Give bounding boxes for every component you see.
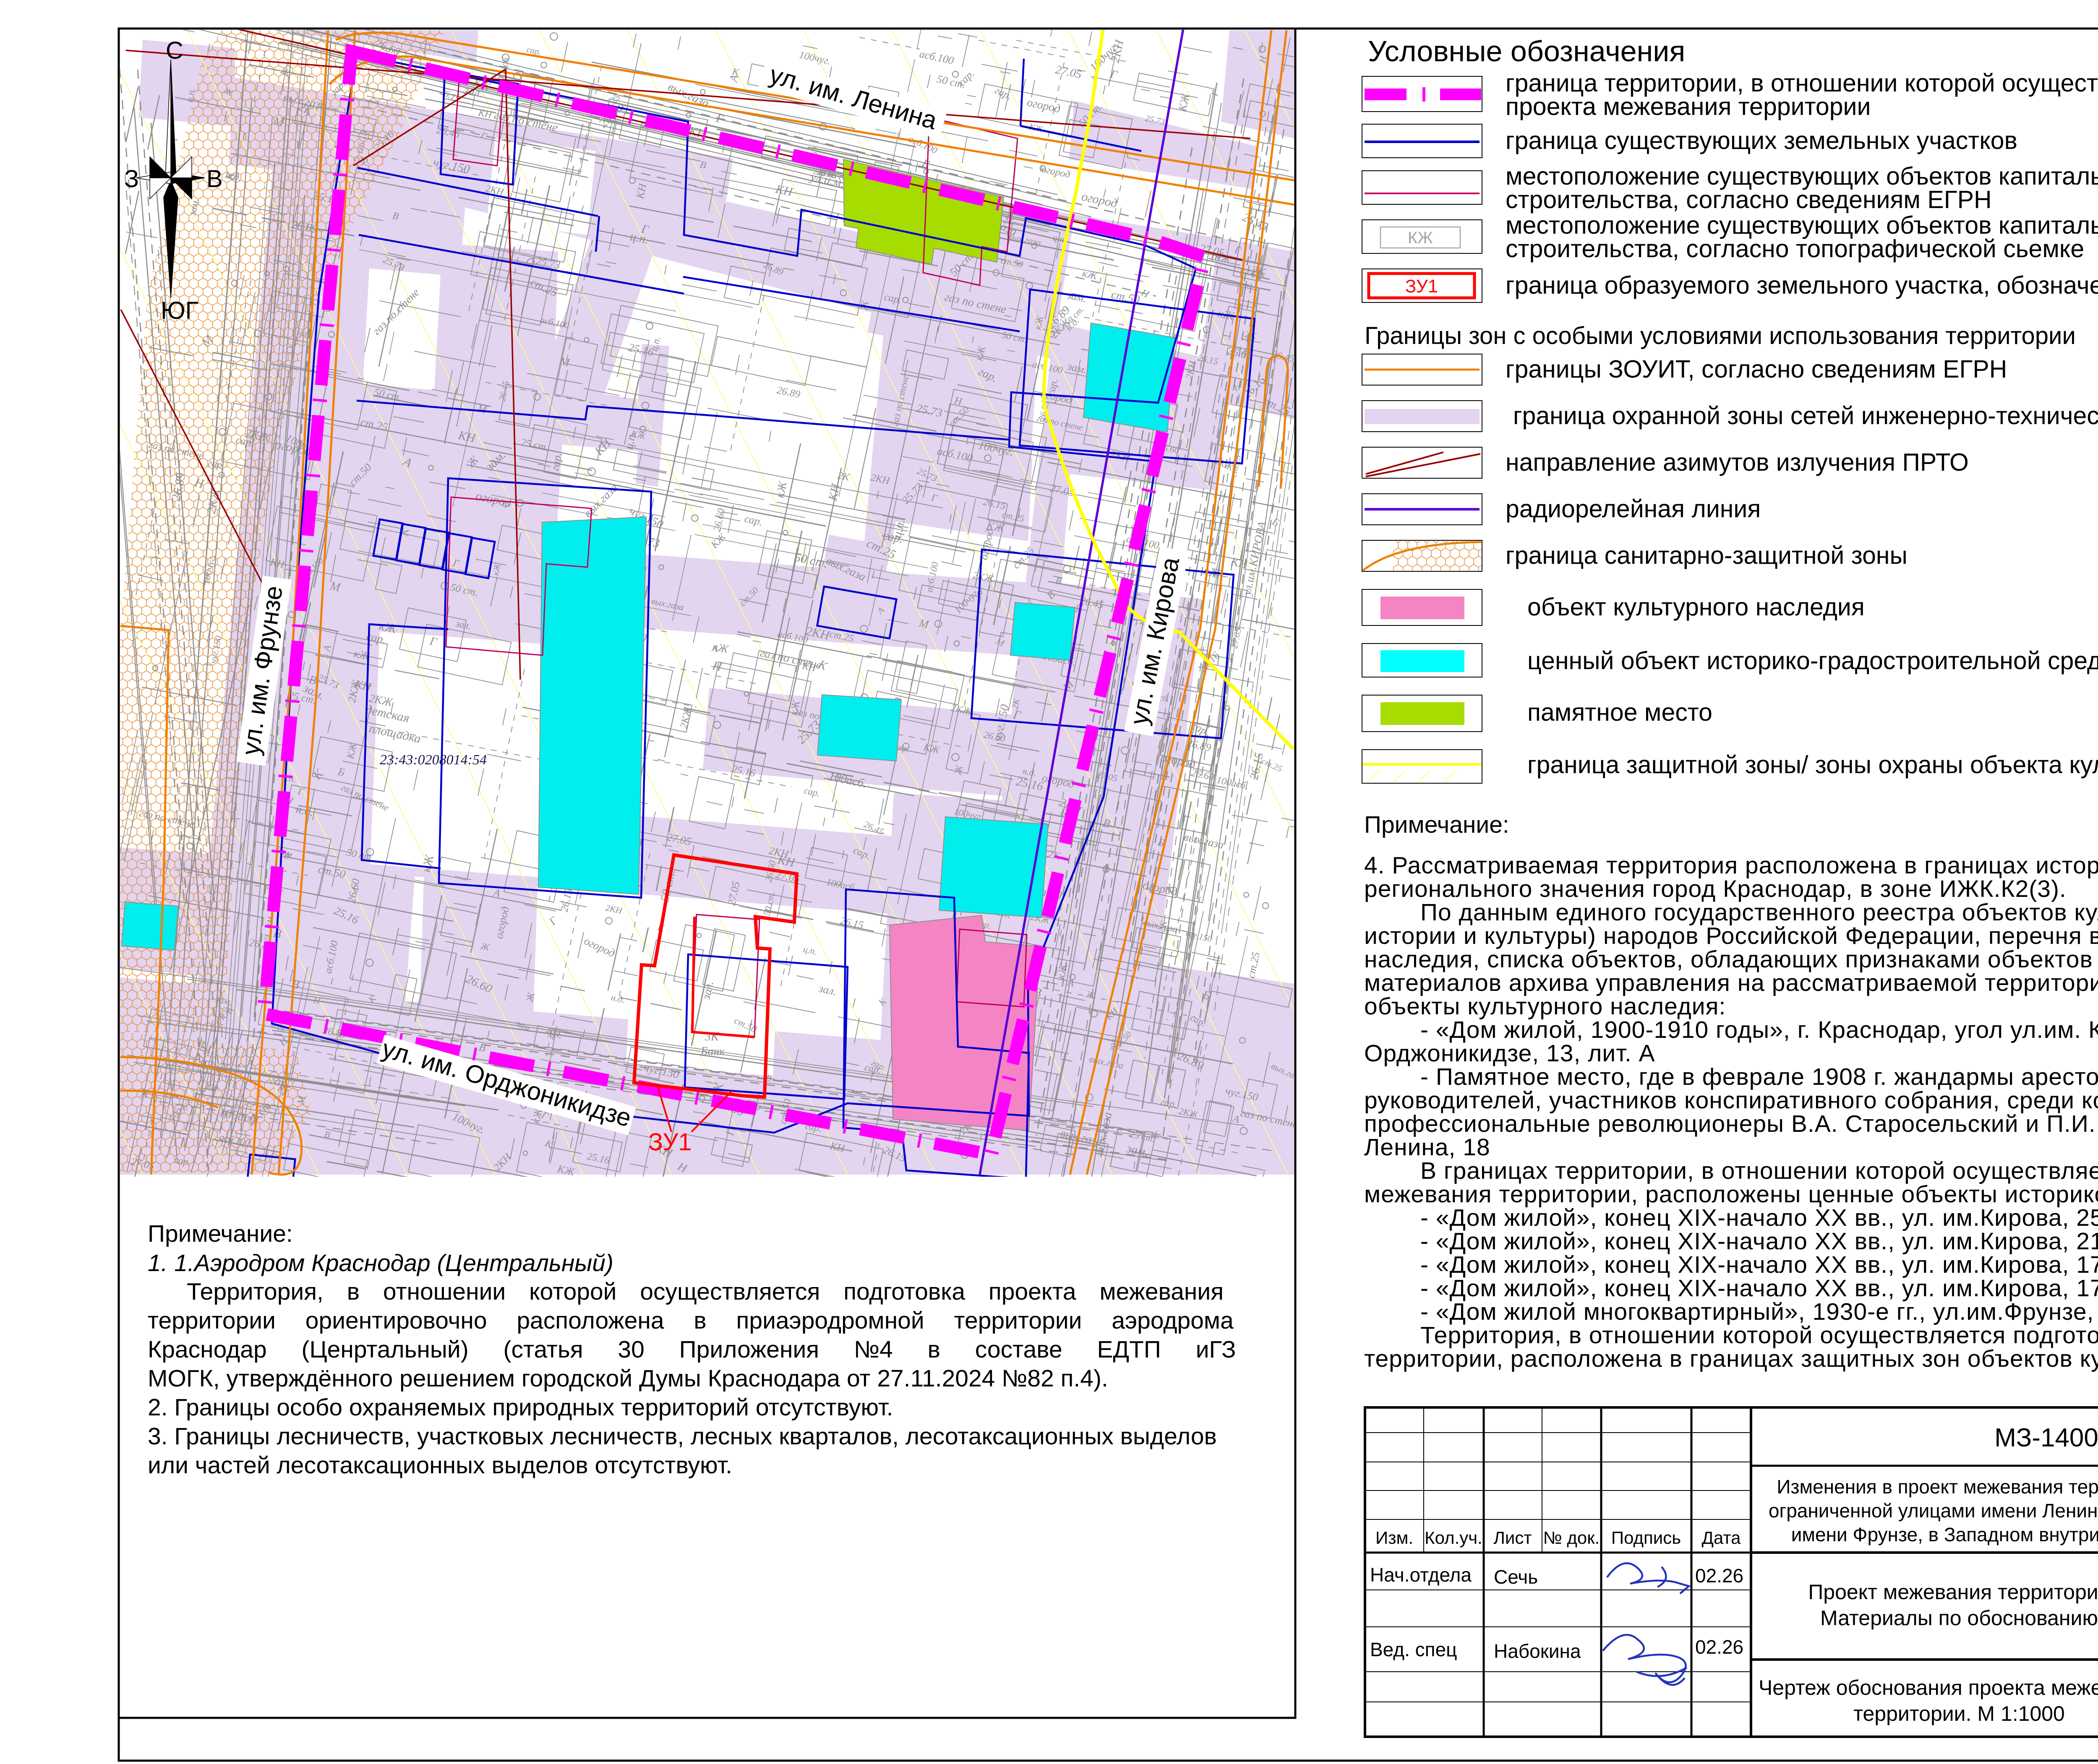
svg-text:строительства, согласно сведен: строительства, согласно сведениям ЕГРН: [1506, 186, 1992, 214]
svg-text:3. Границы лесничеств, участко: 3. Границы лесничеств, участковых леснич…: [148, 1423, 1217, 1450]
svg-text:1. 1.Аэродром Краснодар (Цен: 1. 1.Аэродром Краснодар (Центральный): [148, 1250, 613, 1277]
svg-text:02.26: 02.26: [1695, 1636, 1743, 1658]
svg-text:МОГК, утверждённого решением г: МОГК, утверждённого решением городской Д…: [148, 1365, 1108, 1392]
svg-text:- «Дом жилой, 1900-1910 годы»,: - «Дом жилой, 1900-1910 годы», г. Красно…: [1420, 1016, 2098, 1043]
svg-text:граница образуемого земельного: граница образуемого земельного участка, …: [1506, 271, 2098, 299]
svg-text:граница защитной зоны/ зоны ох: граница защитной зоны/ зоны охраны объек…: [1527, 751, 2098, 779]
svg-text:Кол.уч.: Кол.уч.: [1425, 1528, 1482, 1548]
svg-text:материалов архива управления н: материалов архива управления на рассматр…: [1364, 969, 2098, 996]
svg-text:Границы зон с особыми условиям: Границы зон с особыми условиями использо…: [1365, 322, 2076, 349]
svg-text:Территория, в отношении которо: Территория, в отношении которой осуществ…: [187, 1278, 1224, 1305]
svg-text:проекта межевания территории: проекта межевания территории: [1506, 93, 1871, 120]
svg-text:Примечание:: Примечание:: [1364, 811, 1509, 838]
svg-text:территории. М 1:1000: территории. М 1:1000: [1853, 1702, 2065, 1725]
svg-text:ограниченной улицами имени Лен: ограниченной улицами имени Ленина, имени…: [1769, 1500, 2098, 1522]
svg-text:МЗ-1400/2025-ПМТ: МЗ-1400/2025-ПМТ: [1994, 1423, 2098, 1452]
svg-text:ЗУ1: ЗУ1: [1405, 276, 1438, 297]
svg-text:02.26: 02.26: [1695, 1565, 1743, 1587]
svg-text:руководителей, участников конс: руководителей, участников конспиративног…: [1364, 1087, 2098, 1114]
svg-text:истории и культуры) народов Ро: истории и культуры) народов Российской Ф…: [1364, 922, 2098, 949]
svg-text:Набокина: Набокина: [1494, 1640, 1581, 1662]
svg-text:профессиональные революционеры: профессиональные революционеры В.А. Стар…: [1364, 1110, 2098, 1137]
svg-text:23:43:0208014:54: 23:43:0208014:54: [380, 752, 487, 768]
svg-text:территории ориентировочно расп: территории ориентировочно расположена в …: [148, 1307, 1234, 1334]
svg-text:граница существующих земельных: граница существующих земельных участков: [1506, 127, 2017, 154]
svg-text:Подпись: Подпись: [1611, 1528, 1681, 1548]
svg-text:Территория, в отношении которо: Территория, в отношении которой осуществ…: [1420, 1322, 2098, 1349]
svg-text:Изм.: Изм.: [1375, 1528, 1413, 1548]
svg-text:- «Дом жилой», конец XIX-начал: - «Дом жилой», конец XIX-начало XX вв., …: [1420, 1275, 2098, 1302]
svg-text:Условные обозначения: Условные обозначения: [1368, 35, 1685, 68]
svg-text:Лист: Лист: [1493, 1528, 1532, 1548]
svg-text:Орджоникидзе, 13, лит. А: Орджоникидзе, 13, лит. А: [1364, 1040, 1655, 1067]
svg-text:- «Дом жилой», конец XIX-начал: - «Дом жилой», конец XIX-начало XX вв., …: [1420, 1251, 2098, 1278]
svg-text:Изменения в проект межевания т: Изменения в проект межевания территории …: [1777, 1476, 2098, 1498]
svg-text:Проект межевания территории: Проект межевания территории: [1808, 1580, 2098, 1604]
svg-text:межевания территории, располож: межевания территории, расположены ценные…: [1364, 1181, 2098, 1208]
svg-text:З: З: [124, 165, 139, 193]
svg-text:имени Фрунзе, в Западном внутр: имени Фрунзе, в Западном внутригородском…: [1791, 1524, 2098, 1545]
svg-text:или частей лесотаксационных вы: или частей лесотаксационных выделов отсу…: [148, 1452, 732, 1479]
svg-text:Дата: Дата: [1701, 1528, 1741, 1548]
svg-text:По данным единого государствен: По данным единого государственного реест…: [1420, 899, 2098, 926]
svg-text:Ленина, 18: Ленина, 18: [1364, 1134, 1490, 1161]
svg-text:С: С: [166, 37, 183, 64]
svg-text:В: В: [206, 165, 223, 193]
svg-text:направление азимутов излучения: направление азимутов излучения ПРТО: [1506, 448, 1969, 476]
svg-text:ЗУ1: ЗУ1: [648, 1128, 692, 1156]
svg-text:Вед. спец: Вед. спец: [1370, 1639, 1457, 1660]
svg-text:ценный объект историко-градост: ценный объект историко-градостроительной…: [1527, 647, 2098, 675]
svg-text:Примечание:: Примечание:: [148, 1220, 293, 1247]
svg-text:- «Дом жилой многоквартирный»,: - «Дом жилой многоквартирный», 1930-е гг…: [1420, 1298, 2098, 1325]
svg-text:В границах территории, в отнош: В границах территории, в отношении котор…: [1420, 1157, 2098, 1184]
svg-text:строительства, согласно топогр: строительства, согласно топографической …: [1506, 235, 2084, 263]
svg-text:Сечь: Сечь: [1494, 1566, 1538, 1588]
svg-text:радиорелейная линия: радиорелейная линия: [1506, 495, 1761, 523]
svg-text:ЮГ: ЮГ: [161, 297, 198, 324]
svg-text:границы ЗОУИТ, согласно сведен: границы ЗОУИТ, согласно сведениям ЕГРН: [1506, 355, 2007, 383]
svg-text:4. Рассматриваемая территория: 4. Рассматриваемая территория расположен…: [1364, 852, 2098, 879]
svg-text:граница санитарно-защитной зон: граница санитарно-защитной зоны: [1506, 542, 1908, 569]
svg-text:объект культурного наследия: объект культурного наследия: [1527, 593, 1865, 621]
svg-text:Банк: Банк: [700, 1045, 725, 1058]
svg-text:наследия, списка объектов, обл: наследия, списка объектов, обладающих пр…: [1364, 946, 2098, 973]
svg-text:регионального значения город К: регионального значения город Краснодар, …: [1364, 875, 2067, 902]
svg-text:Нач.отдела: Нач.отдела: [1370, 1564, 1472, 1586]
svg-text:объекты культурного наследия:: объекты культурного наследия:: [1364, 993, 1726, 1020]
svg-text:граница охранной зоны сетей ин: граница охранной зоны сетей инженерно-те…: [1513, 402, 2098, 430]
svg-text:- «Дом жилой», конец XIX-начал: - «Дом жилой», конец XIX-начало XX вв., …: [1420, 1228, 2098, 1255]
svg-text:2. Границы особо охраняемых пр: 2. Границы особо охраняемых природных те…: [148, 1394, 893, 1421]
svg-text:Чертеж обоснования проекта меж: Чертеж обоснования проекта межевания: [1759, 1676, 2098, 1699]
svg-text:памятное место: памятное место: [1527, 698, 1712, 726]
svg-text:КЖ: КЖ: [1408, 229, 1433, 247]
svg-text:- Памятное место, где в феврал: - Памятное место, где в феврале 1908 г. …: [1420, 1063, 2098, 1090]
svg-text:№ док.: № док.: [1543, 1528, 1600, 1548]
svg-text:- «Дом жилой», конец XIX-начал: - «Дом жилой», конец XIX-начало XX вв., …: [1420, 1204, 2098, 1231]
svg-text:Материалы по обоснованию: Материалы по обоснованию: [1820, 1606, 2098, 1630]
svg-text:Краснодар (Ценртальный) (стать: Краснодар (Ценртальный) (статья 30 Прило…: [148, 1336, 1236, 1363]
svg-text:территории, расположена в гран: территории, расположена в границах защит…: [1364, 1345, 2098, 1372]
